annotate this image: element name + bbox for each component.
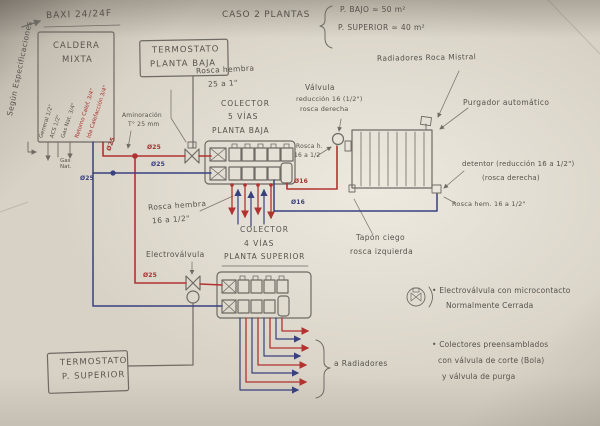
termostato-pb-line1: TERMOSTATO [152, 45, 220, 56]
detentor-l2: (rosca derecha) [482, 174, 540, 182]
caso-item-psuperior: P. SUPERIOR ≈ 40 m² [338, 24, 425, 33]
pipe-tag-d16-ret-rad: Ø16 [291, 200, 305, 207]
valvula-radiador [333, 134, 344, 145]
pipe-tag-d25-ret-horiz: Ø25 [151, 162, 165, 169]
valvula-l2: reducción 16 (1/2") [296, 96, 363, 103]
nota1-l1: • Electroválvula con microcontacto [432, 287, 571, 296]
rosca-hem-16-label: Rosca hem. 16 a 1/2" [452, 201, 526, 208]
tapon-l1: Tapón ciego [356, 234, 405, 243]
rosca-h-rad-l1: Rosca h. [296, 144, 323, 151]
nota1-l2: Normalmente Cerrada [446, 302, 533, 311]
rosca-hembra-25-l2: 25 a 1" [208, 79, 238, 89]
pipe-tag-d25-ida-ps: Ø25 [143, 273, 157, 280]
rosca-h-rad-l2: 16 a 1/2 [294, 153, 320, 160]
colector-pb-l3: PLANTA BAJA [212, 127, 269, 136]
radiadores-marca: Radiadores Roca Mistral [377, 53, 476, 63]
valvula-l3: rosca derecha [300, 106, 348, 113]
colector-ps-l1: COLECTOR [240, 226, 289, 235]
detentor [432, 185, 441, 193]
nota2-l2: con válvula de corte (Bola) [438, 357, 544, 366]
aminoracion-l1: Aminoración [122, 113, 162, 120]
detentor-l1: detentor (reducción 16 a 1/2") [462, 160, 574, 168]
valvula-pb [185, 142, 199, 163]
valvula-l1: Válvula [305, 84, 335, 93]
colector-pb [205, 141, 295, 184]
colector-pb-l1: COLECTOR [221, 100, 270, 109]
aminoracion-l2: T° 25 mm [128, 122, 159, 129]
purgador-label: Purgador automático [463, 99, 549, 108]
tapon-l2: rosca izquierda [350, 248, 413, 257]
gas-label: Gas Nat. [60, 158, 76, 171]
colector-pb-l2: 5 VÍAS [228, 113, 258, 122]
termostato-ps-wire [128, 303, 193, 366]
colector-ps-l2: 4 VÍAS [244, 240, 274, 249]
nota2-l3: y válvula de purga [442, 373, 515, 382]
colector-ps-l3: PLANTA SUPERIOR [224, 253, 305, 262]
radiadores-brace [316, 340, 330, 398]
caldera-title-2: MIXTA [62, 56, 93, 66]
electrovalvula-label: Electroválvula [146, 251, 205, 260]
nota2-l1: • Colectores preensamblados [432, 341, 548, 350]
caldera-title-1: CALDERA [53, 42, 100, 52]
electrovalvula-ps [186, 276, 200, 303]
caso-item-pbajo: P. BAJO ≈ 50 m² [340, 6, 406, 15]
caso-title: CASO 2 PLANTAS [222, 10, 310, 20]
pipe-tag-d16-ida-rad: Ø16 [294, 179, 308, 186]
pipe-tag-d25-ida-horiz: Ø25 [147, 145, 161, 152]
caso-brace [320, 6, 332, 48]
electrovalvula-legend-icon [407, 287, 433, 307]
radiador-pb [333, 116, 442, 193]
a-radiadores-label: a Radiadores [334, 360, 388, 369]
pipe-tag-d25-ret-vert: Ø25 [80, 176, 94, 183]
hand-drawn-heating-schematic: BAXI 24/24F Según Especificaciones CALDE… [0, 0, 600, 426]
colector-ps [217, 272, 311, 318]
